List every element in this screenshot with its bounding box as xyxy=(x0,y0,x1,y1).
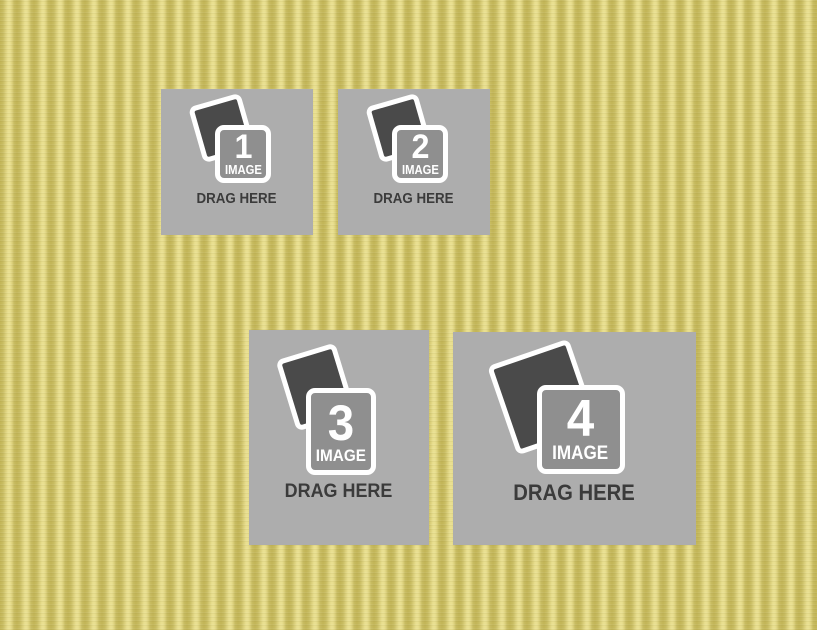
image-word-label: IMAGE xyxy=(402,164,439,177)
photo-front-frame: 4 IMAGE xyxy=(537,385,625,474)
photo-front-frame: 2 IMAGE xyxy=(392,125,448,183)
image-dropzone-1[interactable]: 1 IMAGE DRAG HERE xyxy=(161,89,313,235)
image-dropzone-3[interactable]: 3 IMAGE DRAG HERE xyxy=(249,330,429,545)
image-word-label: IMAGE xyxy=(552,444,608,463)
drag-here-label: DRAG HERE xyxy=(374,192,454,207)
image-dropzone-2[interactable]: 2 IMAGE DRAG HERE xyxy=(338,89,490,235)
image-count-label: 1 xyxy=(234,132,252,163)
striped-wallpaper-background: 1 IMAGE DRAG HERE 2 IMAGE DRAG HERE 3 IM… xyxy=(0,0,817,630)
photo-front-frame: 1 IMAGE xyxy=(215,125,271,183)
image-word-label: IMAGE xyxy=(225,164,262,177)
photo-front-frame: 3 IMAGE xyxy=(306,388,376,475)
drag-here-label: DRAG HERE xyxy=(514,482,635,504)
image-count-label: 4 xyxy=(567,396,594,444)
photo-stack-icon: 3 IMAGE xyxy=(287,346,391,475)
image-count-label: 2 xyxy=(411,132,429,163)
image-count-label: 3 xyxy=(328,400,354,446)
photo-stack-icon: 2 IMAGE xyxy=(368,97,460,183)
photo-stack-icon: 1 IMAGE xyxy=(191,97,283,183)
image-dropzone-4[interactable]: 4 IMAGE DRAG HERE xyxy=(453,332,696,545)
drag-here-label: DRAG HERE xyxy=(285,482,393,502)
image-word-label: IMAGE xyxy=(316,447,366,464)
drag-here-label: DRAG HERE xyxy=(197,192,277,207)
photo-stack-icon: 4 IMAGE xyxy=(500,348,650,474)
